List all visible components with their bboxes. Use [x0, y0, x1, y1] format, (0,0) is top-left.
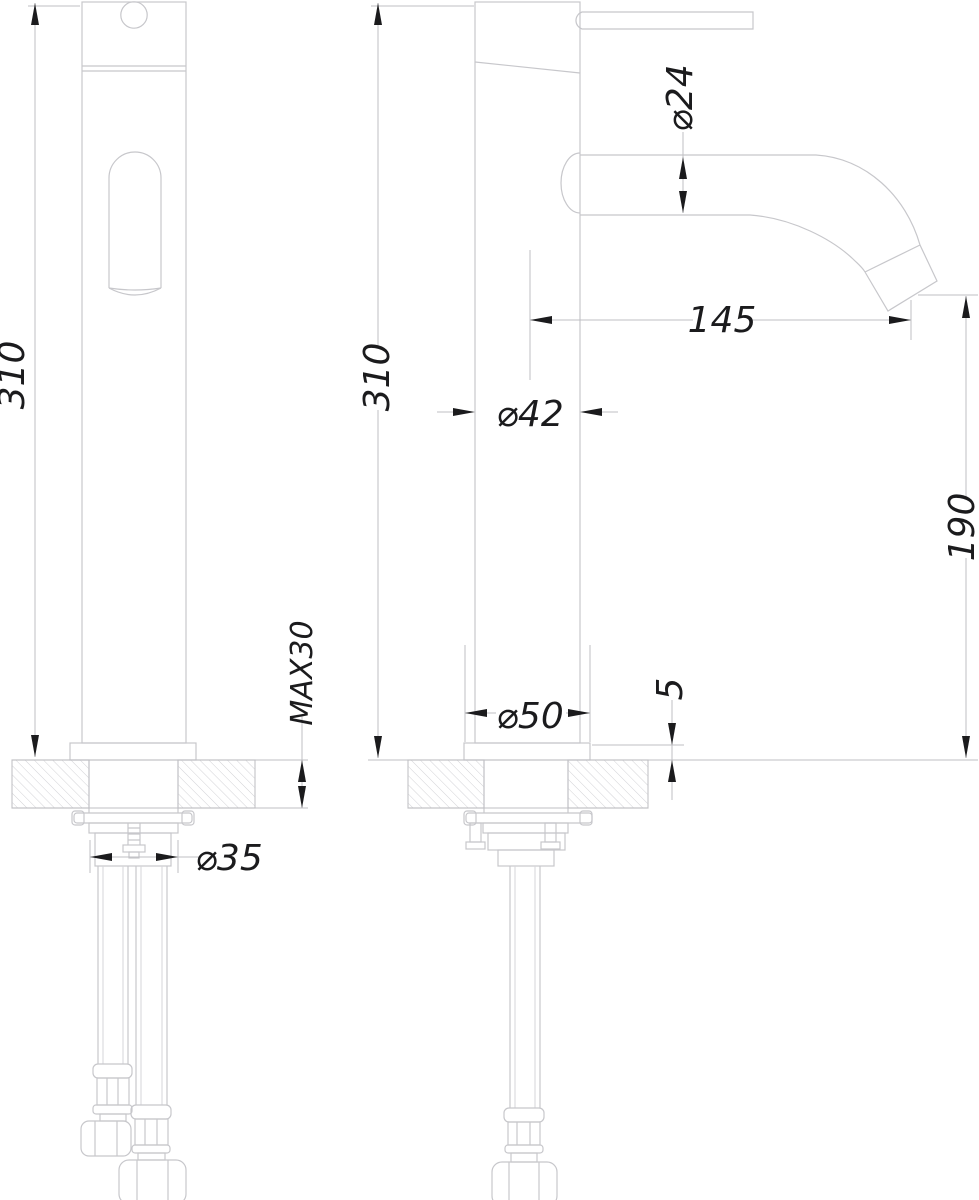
fixing-stud-nut: [466, 842, 485, 849]
arrowhead: [679, 157, 687, 179]
spout-outer-edge: [580, 155, 937, 311]
base-flange-side: [464, 743, 590, 760]
hose-fitting-left: [81, 1064, 132, 1156]
arrowhead: [962, 296, 970, 318]
faucet-body-side: [475, 2, 580, 743]
fixing-stud-nut: [123, 845, 145, 852]
shank-through-counter: [89, 760, 178, 813]
spout-nozzle-seam: [109, 288, 161, 290]
arrowhead: [31, 735, 39, 757]
shank-end-block: [498, 850, 554, 866]
countertop-section: [12, 760, 89, 808]
arrowhead: [453, 408, 475, 416]
arrowhead: [156, 853, 178, 861]
countertop-section: [568, 760, 648, 808]
spout-tube-diameter-label: ⌀24: [660, 64, 701, 131]
horseshoe-washer: [74, 813, 192, 823]
horseshoe-washer: [466, 813, 592, 823]
base-flange-front: [70, 743, 196, 760]
countertop-section: [178, 760, 255, 808]
fixing-stud: [470, 823, 481, 842]
arrowhead: [298, 786, 306, 808]
fixing-stud-nut: [541, 842, 560, 849]
mounting-nut: [483, 823, 568, 833]
side-view: [408, 2, 937, 1200]
technical-drawing-canvas: 310 MAX30 ⌀35 310 ⌀24 145 ⌀42 ⌀50 5 190: [0, 0, 979, 1200]
countertop-section: [408, 760, 484, 808]
spout-root-arc: [561, 153, 580, 213]
faucet-body-front: [82, 2, 186, 743]
arrowhead: [568, 709, 590, 717]
shank-diameter-label: ⌀35: [195, 838, 262, 879]
faucet-dimension-drawing: 310 MAX30 ⌀35 310 ⌀24 145 ⌀42 ⌀50 5 190: [0, 0, 979, 1200]
lever-handle-front: [121, 2, 147, 28]
arrowhead: [679, 191, 687, 213]
dimension-labels: 310 MAX30 ⌀35 310 ⌀24 145 ⌀42 ⌀50 5 190: [0, 64, 979, 879]
outlet-height-label: 190: [942, 493, 979, 562]
arrowhead: [374, 736, 382, 758]
hose-fitting: [492, 1108, 557, 1200]
arrowhead: [889, 316, 911, 324]
arrowhead: [962, 736, 970, 758]
arrowhead: [90, 853, 112, 861]
fixing-stud: [128, 823, 140, 845]
cartridge-cap-seam: [475, 62, 580, 73]
spout-inner-edge: [580, 215, 865, 272]
arrowhead: [580, 408, 602, 416]
front-view: [12, 2, 255, 1200]
shank-through-counter: [484, 760, 568, 813]
base-plate-height-label: 5: [650, 678, 691, 701]
aerator-seam: [865, 245, 920, 272]
side-height-label: 310: [357, 343, 398, 412]
dim-line-front-height: [28, 3, 80, 757]
hose-inner-line: [515, 866, 535, 1108]
max-counter-thickness-label: MAX30: [285, 620, 320, 725]
spout-reach-label: 145: [688, 300, 757, 341]
arrowhead: [530, 316, 552, 324]
shank-end-block: [95, 833, 171, 866]
arrowhead: [465, 709, 487, 717]
arrowhead: [298, 760, 306, 782]
front-height-label: 310: [0, 341, 33, 410]
arrowhead: [668, 760, 676, 782]
base-diameter-label: ⌀50: [496, 696, 563, 737]
counter-reference-lines: [12, 760, 978, 808]
body-diameter-label: ⌀42: [496, 394, 563, 435]
arrowhead: [668, 723, 676, 745]
lever-handle-side: [576, 12, 753, 29]
spout-front-outline: [109, 152, 161, 288]
